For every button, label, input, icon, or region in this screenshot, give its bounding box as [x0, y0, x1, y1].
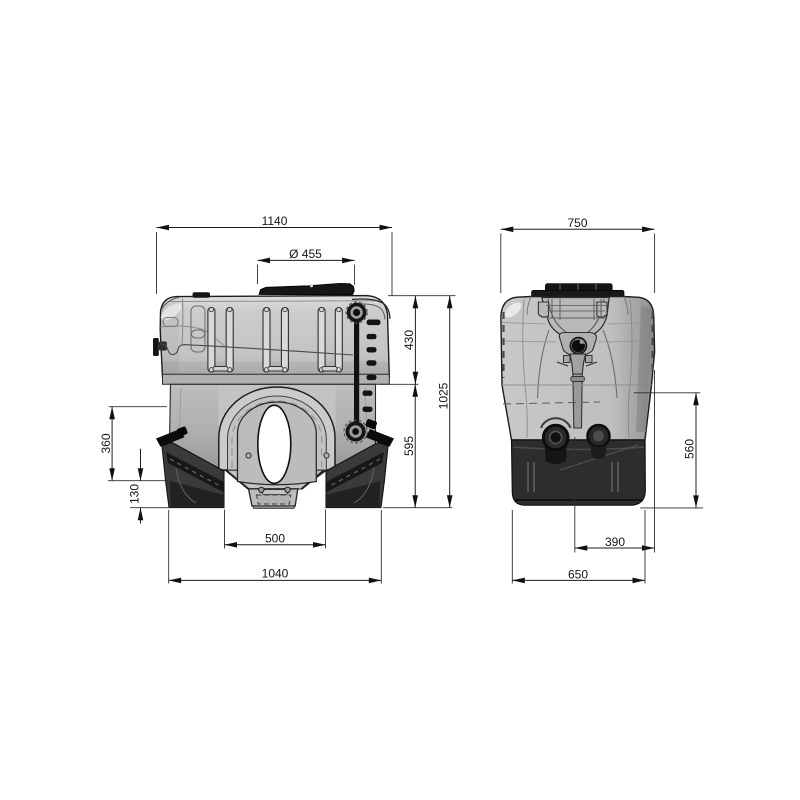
svg-text:1140: 1140 — [262, 214, 288, 228]
svg-text:430: 430 — [402, 330, 416, 350]
svg-text:130: 130 — [128, 484, 142, 504]
svg-text:595: 595 — [402, 436, 416, 456]
svg-text:Ø 455: Ø 455 — [289, 247, 322, 261]
svg-text:1025: 1025 — [437, 382, 451, 409]
svg-text:650: 650 — [568, 568, 588, 582]
svg-text:500: 500 — [265, 532, 285, 546]
svg-text:390: 390 — [605, 535, 625, 549]
svg-text:1040: 1040 — [262, 567, 289, 581]
svg-text:560: 560 — [683, 439, 697, 459]
svg-text:360: 360 — [99, 433, 113, 453]
svg-text:750: 750 — [567, 216, 587, 230]
